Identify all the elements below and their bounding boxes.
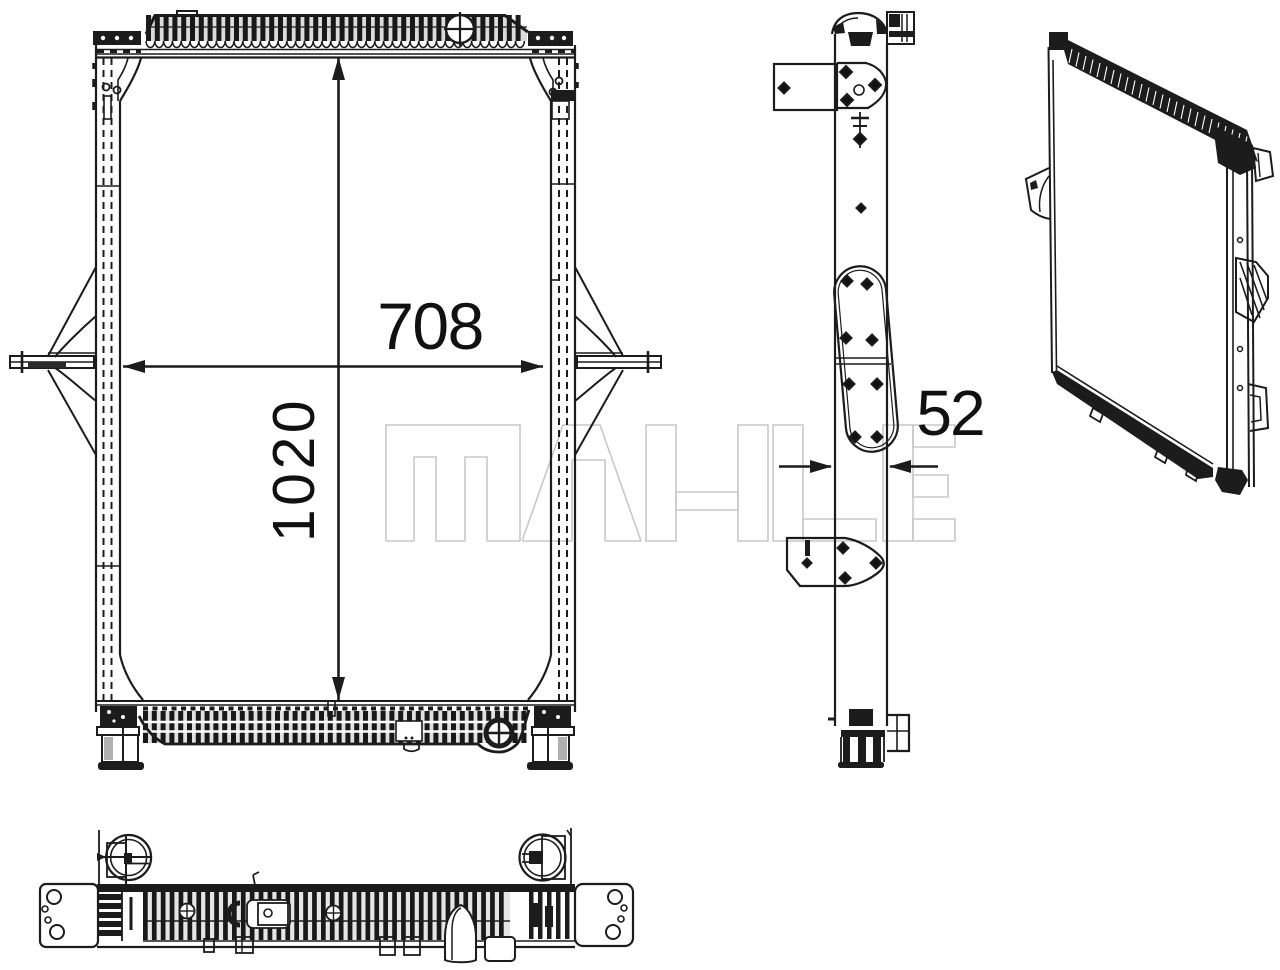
svg-text:1020: 1020 (261, 397, 327, 542)
svg-text:52: 52 (916, 377, 983, 449)
svg-text:708: 708 (377, 289, 483, 363)
